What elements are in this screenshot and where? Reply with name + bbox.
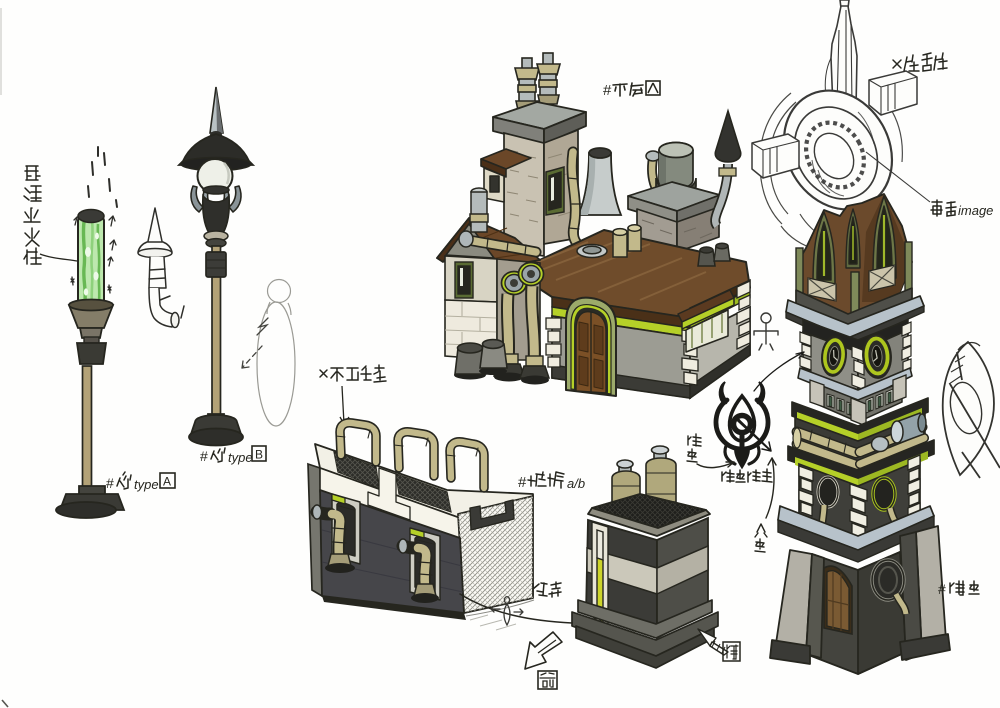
svg-text:B: B bbox=[255, 448, 263, 462]
svg-text:image: image bbox=[958, 203, 993, 218]
svg-text:a/b: a/b bbox=[567, 476, 585, 491]
svg-text:#: # bbox=[518, 474, 527, 491]
svg-text:type: type bbox=[228, 450, 253, 465]
svg-text:#: # bbox=[603, 82, 612, 99]
svg-text:#: # bbox=[106, 475, 114, 491]
svg-text:#: # bbox=[938, 581, 946, 597]
svg-text:A: A bbox=[163, 475, 171, 489]
svg-text:#: # bbox=[200, 448, 208, 464]
svg-text:type: type bbox=[134, 477, 159, 492]
